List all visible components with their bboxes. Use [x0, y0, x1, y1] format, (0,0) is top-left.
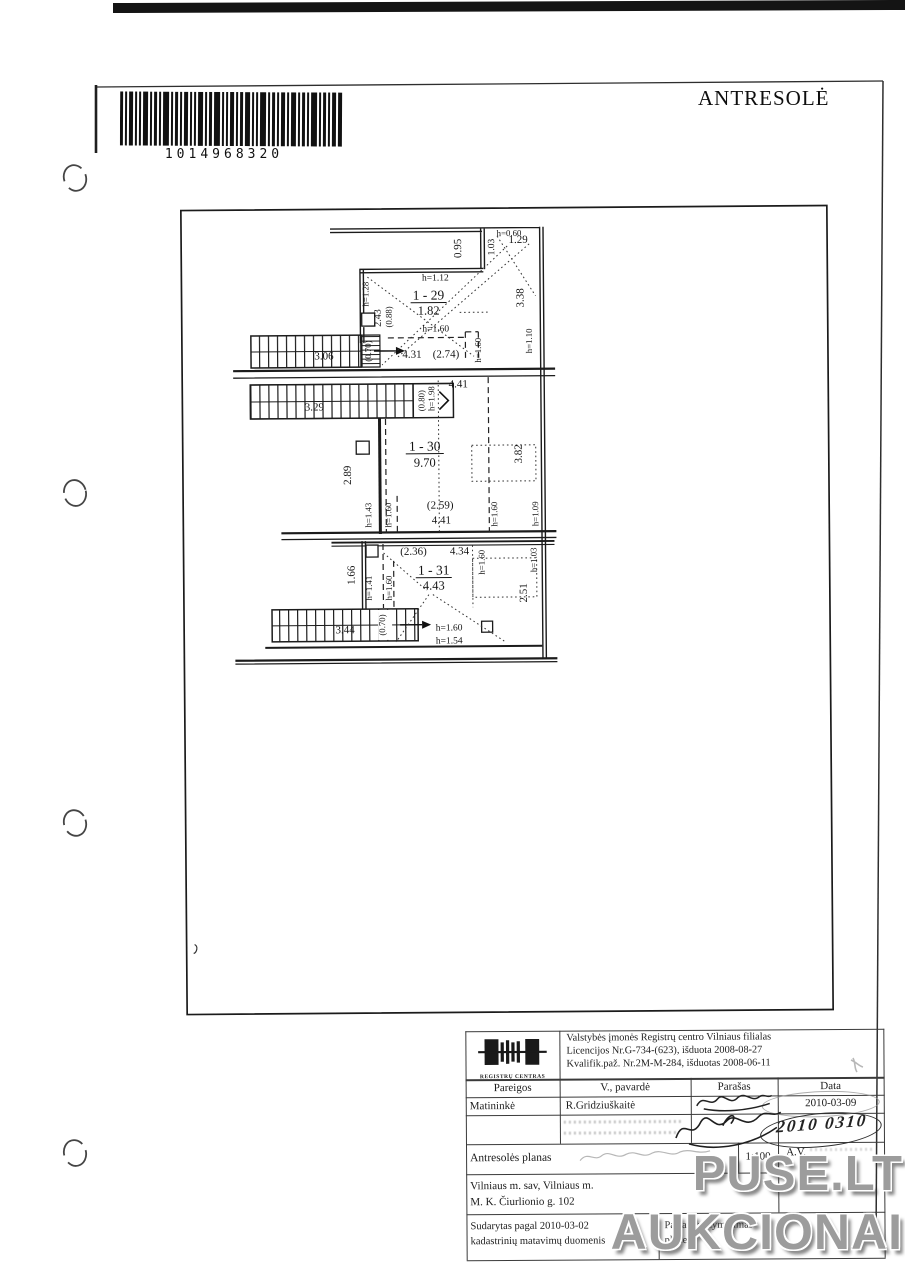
dim-label: 2.89: [342, 465, 354, 485]
dim-label: 1.29: [508, 234, 528, 246]
col-header-pareigos: Pareigos: [466, 1082, 560, 1096]
dim-label: h=1.41: [364, 576, 374, 601]
punch-hole: [61, 807, 90, 839]
illegible-text: [564, 1131, 676, 1135]
dim-label: 3.29: [305, 401, 325, 413]
dim-label: h=1.60: [384, 575, 394, 600]
dim-label: h=1.60: [489, 501, 499, 526]
dim-label: h=1.60: [473, 337, 483, 362]
scan-top-edge: [113, 0, 905, 13]
cell-pareigos: Matininkė: [470, 1100, 515, 1113]
dim-label: h=1.60: [422, 324, 449, 334]
dim-label: 1.03: [487, 239, 497, 256]
dim-label: (2.59): [427, 499, 454, 511]
dim-label: (2.36): [400, 546, 427, 558]
dim-label: h=1.12: [422, 273, 449, 283]
dim-label: h=1.54: [436, 636, 463, 646]
dim-label: h=1.28: [360, 281, 370, 306]
dim-label: 0.95: [452, 238, 464, 258]
watermark-line1: PUSE.LT: [0, 1146, 903, 1202]
room-id: 1 - 31: [418, 562, 450, 577]
cell-pavarde: R.Gridziuškaitė: [566, 1099, 635, 1112]
dim-label: 4.31: [402, 349, 421, 361]
dim-label: 1.66: [346, 565, 358, 585]
punch-hole: [60, 162, 90, 194]
dim-label: 4.34: [450, 545, 470, 557]
registru-centras-logo: REGISTRŲ CENTRAS: [474, 1037, 550, 1084]
dim-label: 3.06: [314, 350, 334, 362]
dim-label: 4.41: [432, 514, 451, 526]
dim-label: 3.82: [513, 444, 525, 463]
watermark: PUSE.LT AUKCIONAI: [0, 1146, 903, 1260]
dim-label: h=1.03: [529, 547, 539, 572]
room-area: 1.82: [418, 304, 440, 318]
stairs: [250, 334, 455, 642]
ink-speck: [194, 944, 197, 953]
punch-hole: [62, 478, 89, 508]
dim-label: (0.88): [384, 306, 394, 327]
dim-label: h=1.60: [383, 502, 393, 527]
dim-label: h=1.09: [530, 501, 540, 526]
org-line: Licencijos Nr.G-734-(623), išduota 2008-…: [566, 1044, 771, 1058]
org-line: Kvalifik.paž. Nr.2M-M-284, išduotas 2008…: [566, 1057, 771, 1071]
plan-walls: [232, 227, 557, 665]
room-id: 1 - 30: [409, 439, 441, 454]
dim-label: 3.44: [335, 624, 355, 636]
illegible-text: [564, 1120, 684, 1124]
dim-label: h=1.43: [363, 502, 373, 527]
barcode-number: 1014968320: [118, 147, 330, 162]
dim-label: h=1.10: [524, 328, 534, 353]
dim-label: (0.70): [377, 614, 387, 635]
barcode: [120, 91, 346, 149]
dim-label: 4.41: [449, 378, 468, 390]
organisation-info: Valstybės įmonės Registrų centro Vilniau…: [566, 1031, 771, 1071]
room-id: 1 - 29: [413, 288, 445, 303]
floor-plan: 0.95 h=0.60 1.03 1.29 h=1.12 1 - 29 1.82…: [177, 197, 843, 1022]
dim-label: h=1.60: [477, 549, 487, 574]
scanned-document-page: 1014968320 ANTRESOLĖ: [0, 0, 905, 1280]
dim-label: (0.80): [416, 390, 426, 411]
col-header-pavarde: V., pavardė: [560, 1081, 691, 1095]
dim-label: 3.38: [514, 288, 526, 308]
dim-label: 2.51: [518, 583, 530, 602]
org-line: Valstybės įmonės Registrų centro Vilniau…: [566, 1031, 771, 1045]
dim-label: h=1.98: [426, 386, 436, 411]
dim-label: (0.70): [363, 340, 373, 361]
barcode-bars: [120, 91, 342, 146]
room-area: 9.70: [414, 456, 436, 470]
watermark-line2: AUKCIONAI: [0, 1204, 903, 1260]
dim-label: 2.43: [373, 309, 384, 327]
page-title: ANTRESOLĖ: [698, 86, 873, 111]
room-area: 4.43: [423, 579, 445, 593]
dim-label: h=1.60: [436, 623, 463, 633]
dim-label: (2.74): [433, 348, 460, 360]
